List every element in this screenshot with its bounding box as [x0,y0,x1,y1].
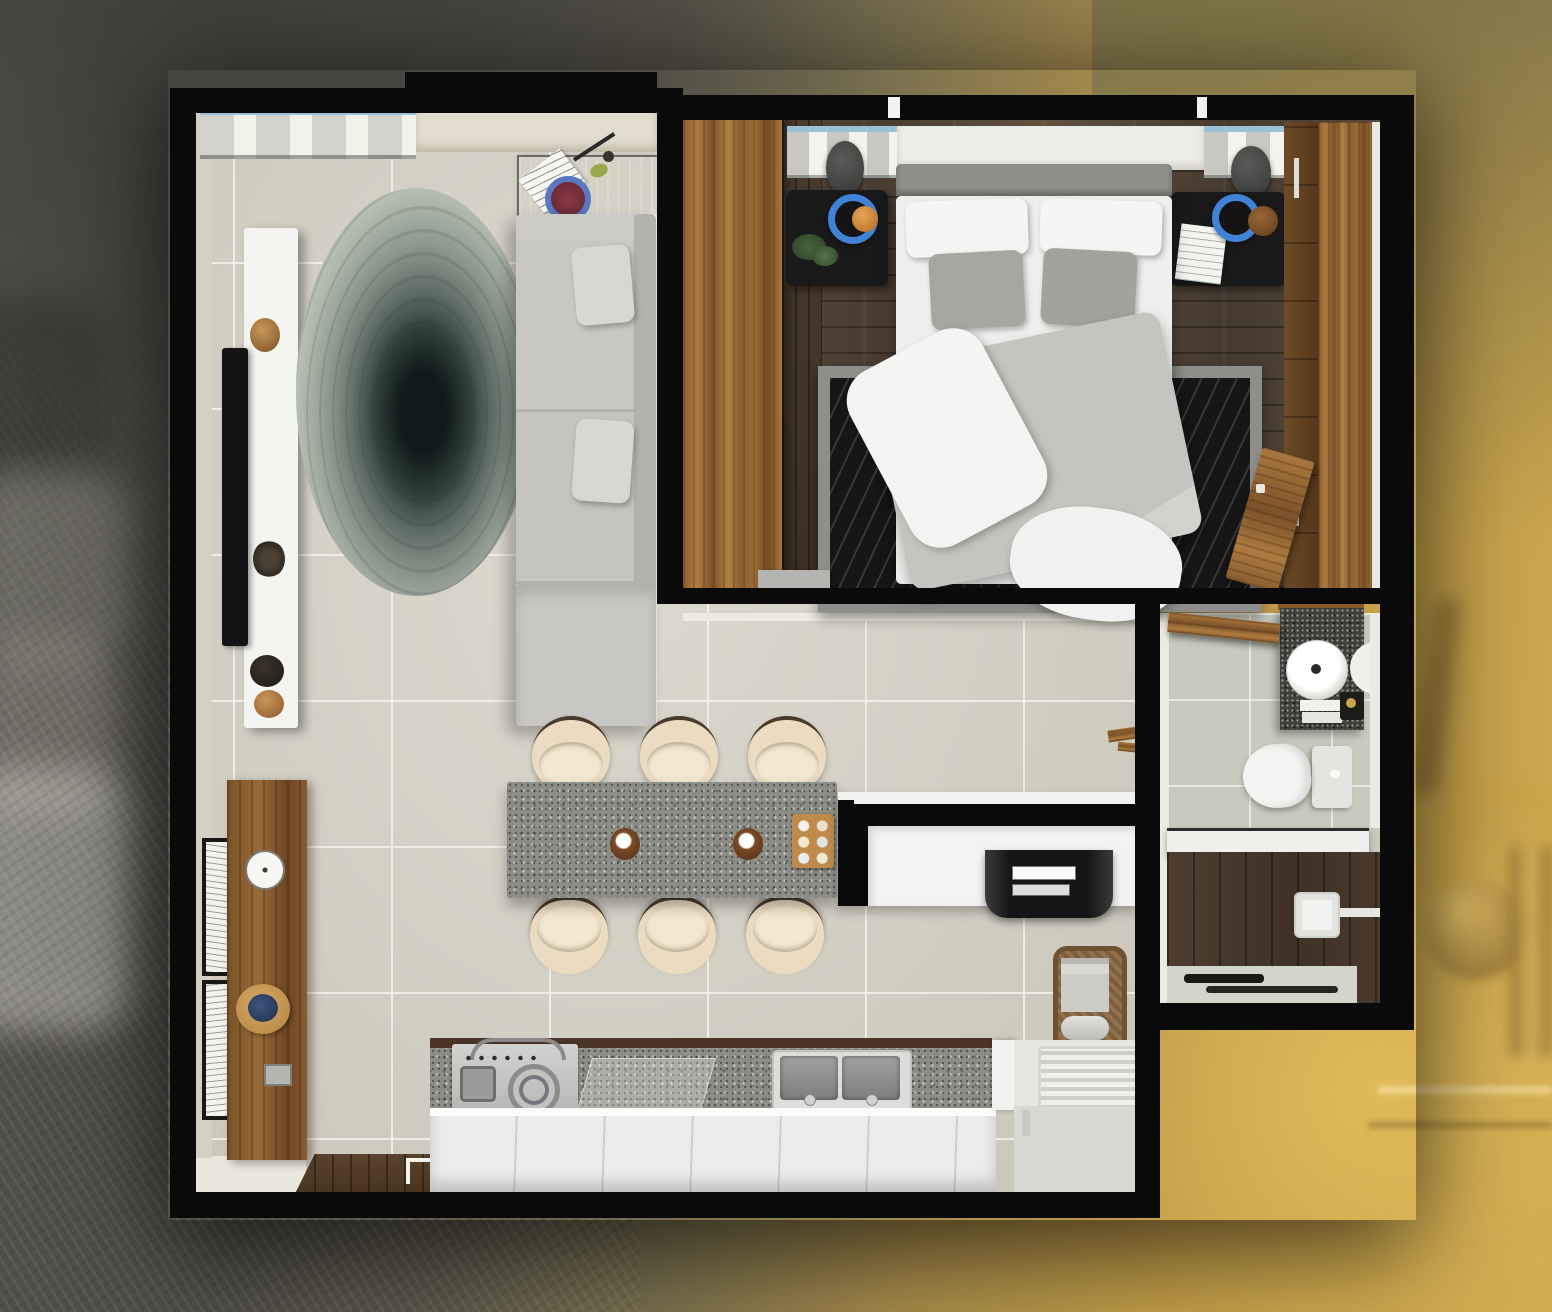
pendant-lamp-2 [1231,146,1271,198]
shower-head [1294,892,1340,938]
wall-bedroom-bottom [657,588,1414,604]
glass-board [576,1058,716,1114]
floorplan-scene [0,0,1552,1312]
decor-bowl-1 [250,655,284,687]
living-window [200,108,416,159]
orange-decor-ball [852,206,878,232]
wall-notch-1 [888,97,900,118]
vanity-gold-cup [1346,698,1356,708]
laundry-washboard-sink [1038,1046,1138,1112]
pendant-lamp-1 [826,141,864,195]
tv-console [244,228,298,728]
wall-top-bedroom [683,95,1414,120]
vanity-towel-2 [1302,712,1342,723]
sofa-pillow-1 [571,244,636,327]
dining-chair [746,896,824,974]
sink-faucet-2 [866,1094,878,1106]
sliding-door-panel [683,117,782,588]
wardrobe-handle-1 [1294,158,1299,198]
serving-tray [792,814,834,868]
toilet-flush-button [1330,770,1340,778]
shower-drain-1 [1184,974,1264,983]
entry-door-mat [196,1156,306,1192]
sofa-pillow-2 [571,418,635,504]
entry-door-frame-mark [406,1158,432,1184]
oven-display [1012,866,1076,880]
shower-arm [1336,908,1380,917]
stove-burner-left [460,1066,496,1102]
wood-disc-decor [1248,206,1278,236]
bed-pillow-white-1 [905,198,1029,258]
sofa-armrest [516,214,634,240]
decor-flower [253,540,285,578]
oven-controls [1012,884,1070,896]
table-lamp-knob [603,151,614,162]
wall-kitchen-stub [838,800,854,906]
laundry-divider [992,1040,1014,1110]
wall-top-step [405,72,657,90]
dining-chair [748,716,826,792]
living-top-wall-face [415,110,657,152]
dining-chair [640,716,718,792]
bed-pillow-gray-1 [928,250,1026,331]
dining-chair [532,716,610,792]
cabinet-front [430,1108,996,1192]
sofa-chaise [516,584,656,726]
bedroom-bench [758,570,830,588]
shower-glass-partition [1167,828,1369,855]
shower-floor [1167,966,1357,1003]
wardrobe-door-handle [1256,484,1265,493]
basket-towels [1061,958,1109,1012]
sofa-backrest [634,214,656,604]
table-vase-2 [733,828,763,860]
wall-clock [245,850,285,890]
dining-table [507,782,837,898]
bathroom-left-jamb [1160,613,1167,1003]
vanity-towel-1 [1300,700,1342,711]
wall-bottom [170,1192,1160,1218]
basket-towel-roll [1061,1016,1109,1040]
bathroom-right-face [1370,613,1380,828]
shower-drain-2 [1206,986,1338,993]
nightstand-plant-2 [812,246,838,266]
dining-chair [638,896,716,974]
decor-bowl-2 [254,690,284,718]
bed-headboard [896,164,1172,196]
wall-right-main [1135,604,1160,1218]
laundry-floor [1014,1106,1135,1192]
sink-drain [1311,664,1321,674]
wall-right-bathroom [1380,613,1414,1030]
dining-chair [530,896,608,974]
wall-right-bedroom [1380,95,1414,613]
wardrobe [1318,122,1372,592]
wardrobe-wall-face [1372,122,1380,592]
wall-left [170,88,196,1218]
wall-living-bedroom [657,88,683,588]
sink-faucet-1 [804,1094,816,1106]
round-gradient-rug [296,188,536,596]
backdrop-gold-vase-blur [1510,846,1552,1056]
wall-bathroom-bottom [1160,1003,1414,1030]
wall-top-living [170,88,657,113]
bedroom-floor-strip [782,117,822,588]
decor-disc [250,318,280,352]
tray-decor [248,994,278,1022]
tv [222,348,248,646]
table-vase-1 [610,828,640,860]
entry-sideboard [227,780,307,1160]
wall-notch-2 [1197,97,1207,118]
sideboard-bracket [264,1064,292,1086]
laundry-faucet [1022,1110,1030,1136]
stove-knobs [462,1055,538,1061]
